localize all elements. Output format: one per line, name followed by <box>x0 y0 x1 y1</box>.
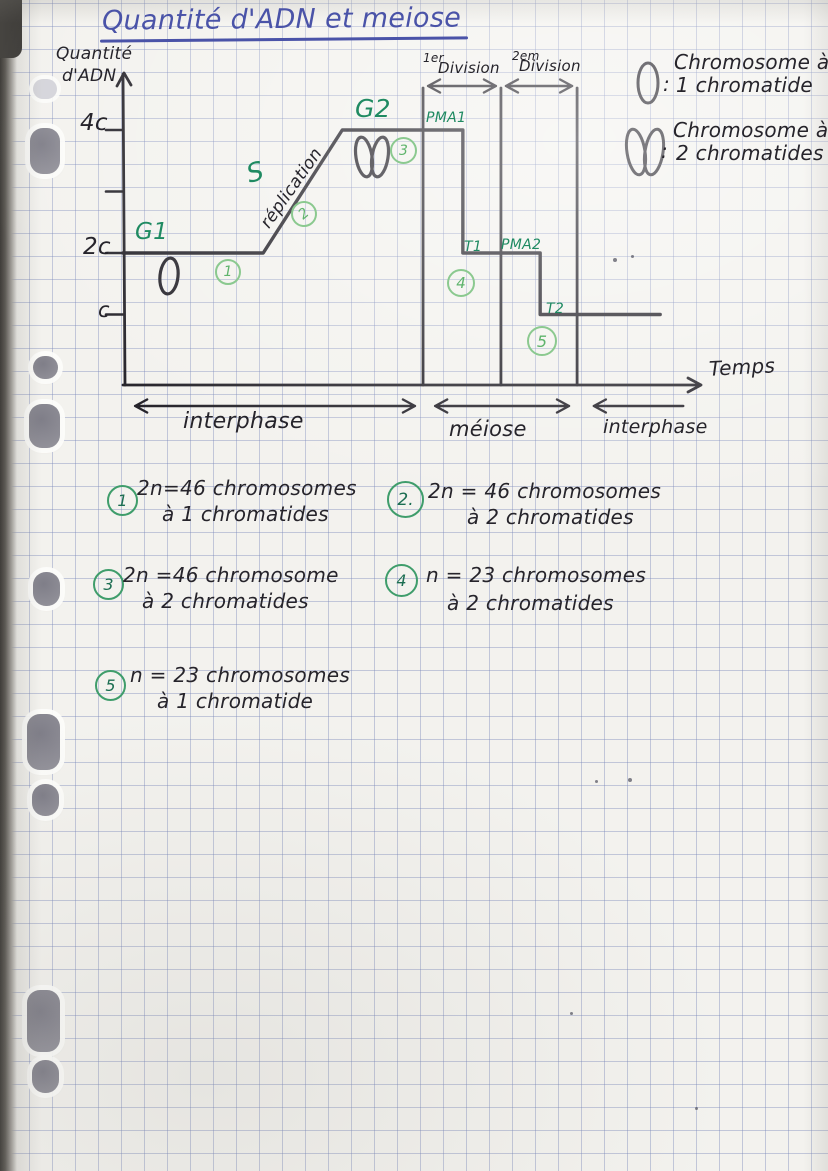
phase-label-pma2: PMA2 <box>501 238 541 252</box>
binder-hole <box>30 128 60 174</box>
note3-line2: à 2 chromatides <box>142 591 309 611</box>
span-label-interphase-1: interphase <box>183 411 304 433</box>
page-title: Quantité d'ADN et meiose <box>102 4 461 34</box>
page-corner-shadow <box>0 0 22 58</box>
ink-speck <box>631 255 634 258</box>
graph-mark-1: 1 <box>215 259 241 285</box>
binder-hole <box>32 1060 59 1093</box>
y-axis-label-line1: Quantité <box>56 46 132 63</box>
graph-mark-4: 4 <box>447 269 475 297</box>
division1-word: Division <box>438 61 500 76</box>
note2-number: 2. <box>387 481 424 518</box>
notebook-page: Quantité d'ADN et meiose Quantité d'ADN … <box>0 0 828 1171</box>
note4-number: 4 <box>385 564 418 597</box>
phase-label-pma1: PMA1 <box>426 111 466 125</box>
legend1-line2: 1 chromatide <box>676 75 813 95</box>
binder-hole <box>27 990 60 1052</box>
span-label-meiose: méiose <box>449 419 527 440</box>
ink-speck <box>695 1107 698 1110</box>
note3-number: 3 <box>93 569 124 600</box>
binder-hole <box>32 784 59 816</box>
note4-line2: à 2 chromatides <box>447 593 614 613</box>
page-left-edge <box>0 0 17 1171</box>
y-tick-label-c: c <box>98 300 110 321</box>
binder-hole <box>33 356 58 379</box>
phase-label-g2: G2 <box>355 96 391 121</box>
note5-line1: n = 23 chromosomes <box>130 665 350 685</box>
note4-line1: n = 23 chromosomes <box>426 565 646 585</box>
binder-hole <box>33 572 60 606</box>
phase-label-t1: T1 <box>464 240 482 254</box>
graph-mark-5: 5 <box>527 326 557 356</box>
legend2-line1: Chromosome à <box>673 120 828 140</box>
y-tick-label-2c: 2c <box>83 236 111 259</box>
note1-number: 1 <box>107 485 138 516</box>
binder-hole <box>33 79 57 99</box>
note3-line1: 2n =46 chromosome <box>123 565 339 585</box>
y-tick-label-4c: 4c <box>80 112 108 135</box>
note5-line2: à 1 chromatide <box>157 691 313 711</box>
note1-line1: 2n=46 chromosomes <box>137 478 357 498</box>
note1-line2: à 1 chromatides <box>162 504 329 524</box>
ink-speck <box>595 780 598 783</box>
binder-hole <box>27 714 60 770</box>
division2-word: Division <box>519 59 581 74</box>
graph-mark-3: 3 <box>390 137 417 164</box>
legend2-line2: 2 chromatides <box>676 143 824 163</box>
legend2-separator: : <box>661 141 668 161</box>
y-axis-label-line2: d'ADN <box>62 68 116 85</box>
phase-label-g1: G1 <box>135 221 168 244</box>
ink-speck <box>628 778 632 782</box>
ink-speck <box>613 258 617 262</box>
phase-label-t2: T2 <box>546 302 564 316</box>
legend1-line1: Chromosome à <box>674 52 828 72</box>
note2-line1: 2n = 46 chromosomes <box>428 481 661 501</box>
note5-number: 5 <box>95 670 126 701</box>
binder-hole <box>29 404 60 448</box>
ink-speck <box>570 1012 573 1015</box>
x-axis-label: Temps <box>709 355 776 378</box>
legend1-separator: : <box>663 74 670 94</box>
note2-line2: à 2 chromatides <box>467 507 634 527</box>
span-label-interphase-2: interphase <box>603 418 708 437</box>
